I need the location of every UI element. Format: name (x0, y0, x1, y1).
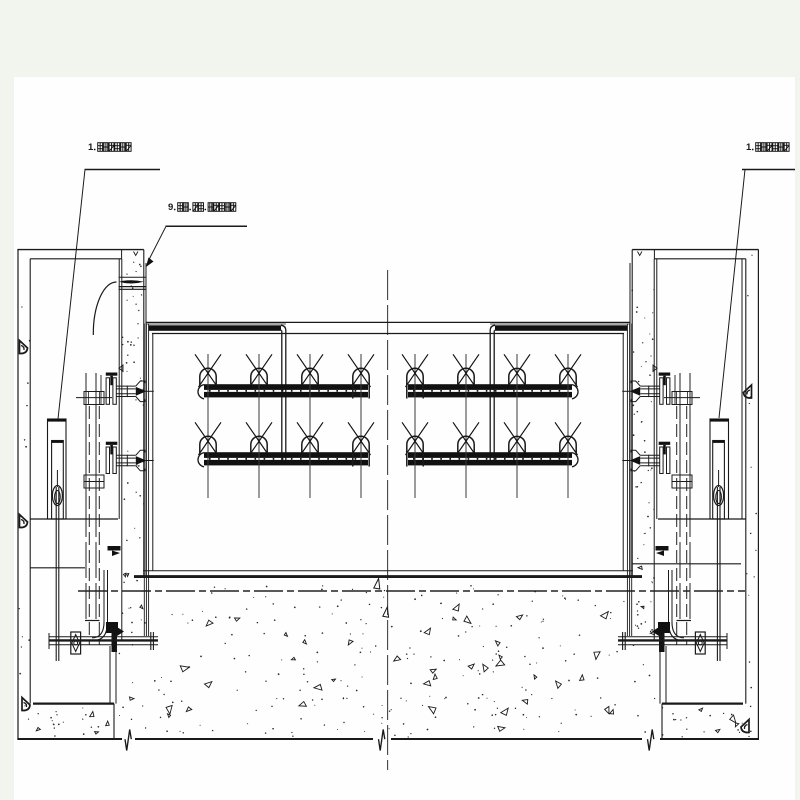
svg-text:1: 1 (746, 142, 752, 153)
svg-text:9: 9 (168, 202, 173, 213)
svg-text:1: 1 (88, 142, 94, 153)
